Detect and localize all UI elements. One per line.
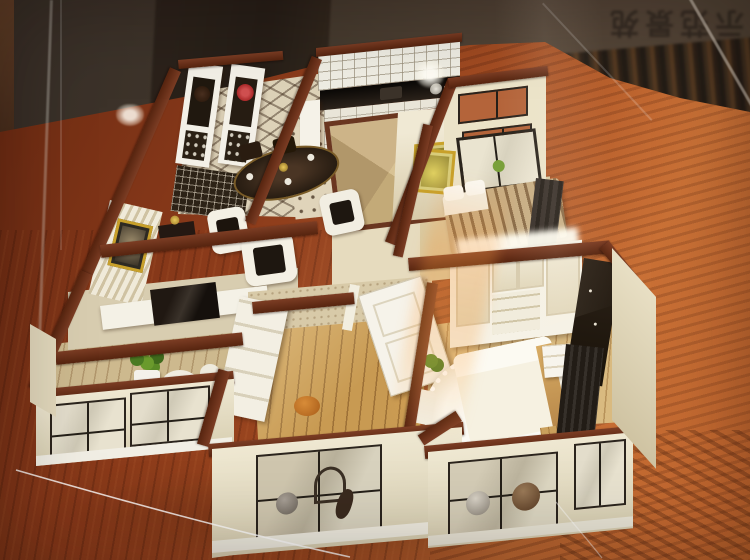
center-window (256, 444, 382, 541)
red-plate (236, 83, 255, 102)
photo-scene: 示范景苑 (0, 0, 750, 560)
plate (284, 177, 292, 185)
cabinet-right-display (229, 77, 257, 128)
armchair-cushion (253, 244, 287, 276)
plate (307, 153, 315, 161)
right-front-face (428, 432, 633, 548)
window-mullion (599, 443, 601, 505)
plate (245, 172, 253, 180)
interior-silver-ball (466, 490, 490, 516)
left-return-face (30, 324, 56, 417)
interior-brown-ball (512, 481, 540, 512)
interior-gray-ball (276, 491, 298, 515)
flare-heart (116, 104, 144, 126)
cabinet-left-display (187, 77, 215, 128)
dresser-sparkle (594, 322, 597, 325)
orange-stool (294, 396, 320, 416)
cabinet-tower-left (175, 62, 223, 168)
window-mullion (87, 403, 89, 453)
window-mullion (167, 391, 169, 441)
cabinet-left-lower (182, 130, 208, 161)
master-curtain (556, 344, 603, 439)
gold-lamp (170, 215, 180, 225)
cabinet-left-art (193, 85, 211, 103)
window-mullion (132, 416, 208, 425)
right-window-side (574, 439, 626, 510)
